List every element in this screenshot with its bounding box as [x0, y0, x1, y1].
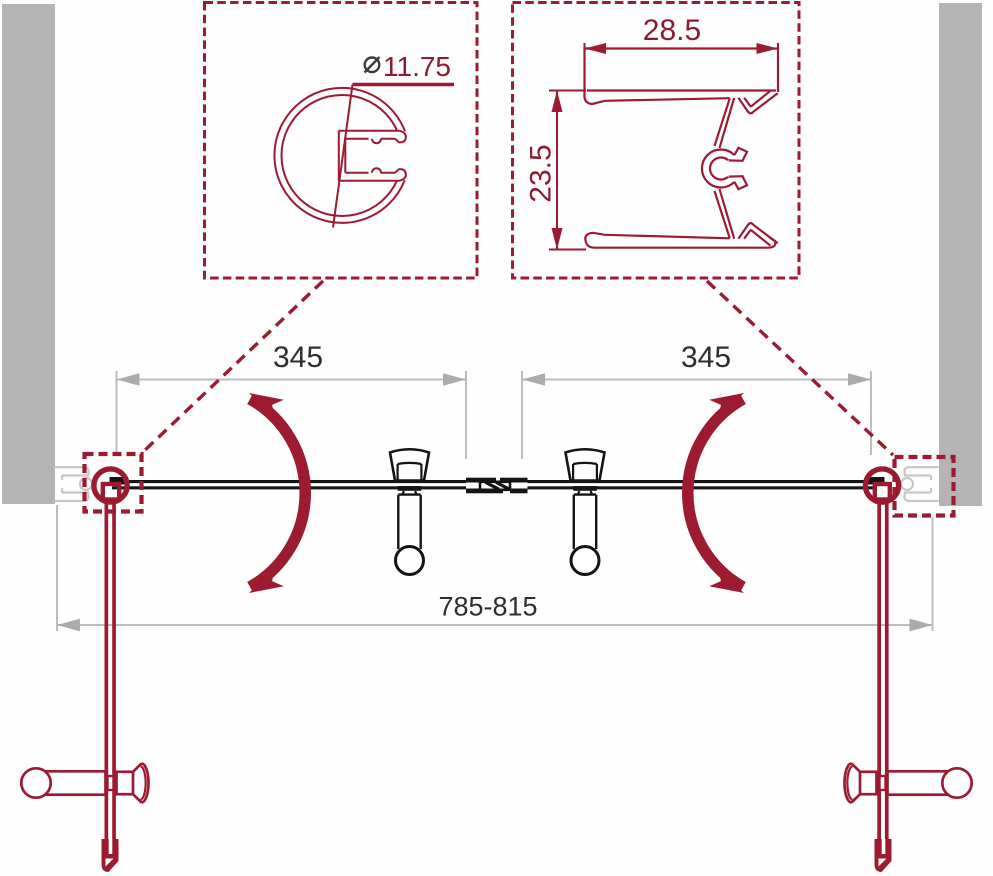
svg-text:23.5: 23.5 — [525, 144, 558, 202]
svg-text:11.75: 11.75 — [383, 51, 451, 82]
svg-text:785-815: 785-815 — [438, 592, 537, 622]
svg-text:345: 345 — [273, 341, 323, 374]
svg-text:28.5: 28.5 — [643, 14, 701, 47]
svg-text:345: 345 — [681, 341, 731, 374]
